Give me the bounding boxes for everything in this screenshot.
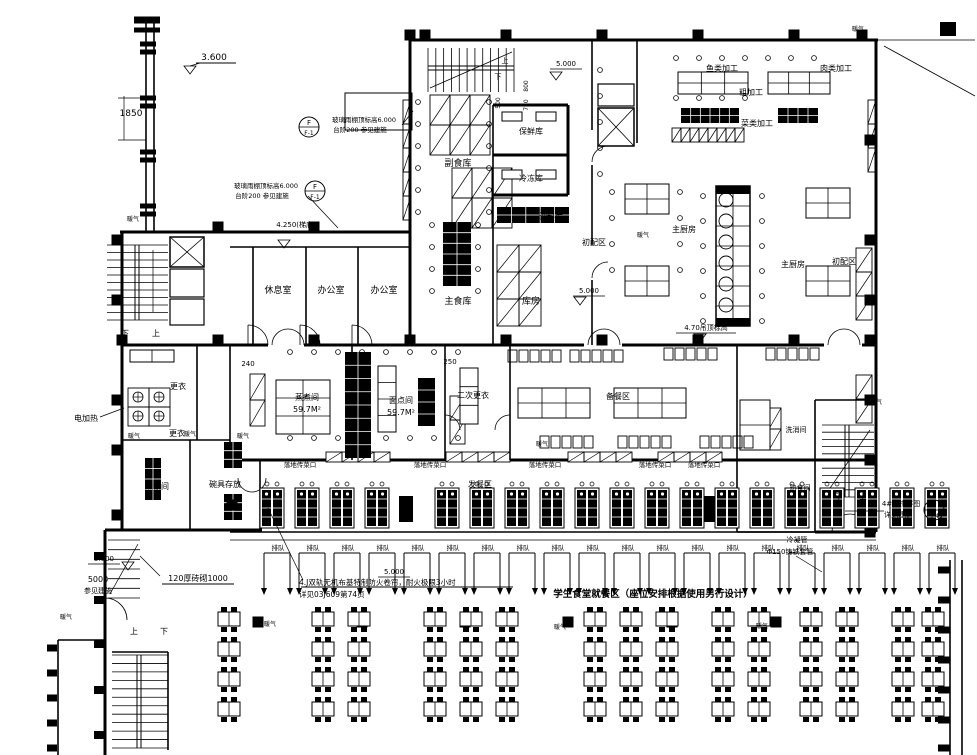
plan-label: 落地传菜口: [529, 460, 562, 469]
plan-label: 5000: [88, 575, 108, 584]
detail-circle-top: F: [307, 119, 311, 127]
detail-circle-bottom: 3-4: [929, 513, 939, 520]
plan-label: 落地传菜口: [688, 460, 721, 469]
plan-label: Φ150铸铁套管: [767, 547, 814, 556]
plan-label: 鱼类加工: [706, 63, 738, 73]
plan-label: 落地传菜口: [284, 460, 317, 469]
detail-circle-top: F: [313, 183, 317, 191]
queue-label: 排队: [517, 543, 531, 552]
plan-label: 4#楼梯详图: [882, 499, 920, 508]
plan-label: 500: [495, 97, 502, 109]
plan-label: 暖气: [264, 620, 276, 628]
plan-label: 台阶200 参见建施: [333, 125, 387, 134]
plan-label: 办公室: [317, 284, 344, 296]
queue-label: 排队: [412, 543, 426, 552]
plan-label: 初配区: [582, 237, 606, 247]
plan-label: 暖气: [237, 432, 249, 440]
plan-label: 碗具存放: [209, 479, 241, 489]
plan-label: 800: [523, 80, 530, 92]
plan-label: 下: [160, 627, 168, 636]
plan-label: 备餐区: [606, 391, 630, 401]
plan-label: 办公室: [370, 284, 397, 296]
plan-label: 二次更衣: [457, 390, 489, 400]
plan-label: 玻璃雨棚顶标高6.000: [234, 181, 298, 190]
plan-label: 库房: [522, 295, 540, 307]
plan-label: 暖气: [637, 231, 649, 239]
plan-label: 更衣: [170, 381, 186, 391]
serving-stations-layer: [260, 482, 949, 528]
plan-label: 熟食间: [790, 483, 811, 492]
queue-label: 排队: [902, 543, 916, 552]
plan-label: 5.000: [556, 60, 576, 68]
plan-label: 菜类加工: [741, 118, 773, 128]
note-fire-curtain-line2: 详见03J609第74页: [299, 589, 365, 600]
note-dining-area: 学生食堂就餐区（座位安排根据使用另行设计）: [468, 586, 838, 600]
queue-label: 排队: [272, 543, 286, 552]
floor-plan-svg: 排队排队排队排队排队排队排队排队排队排队排队排队排队排队排队排队排队排队排队排队…: [0, 0, 977, 755]
plan-label: 暖气: [184, 430, 196, 438]
detail-circle-bottom: F-1: [304, 130, 314, 137]
plan-label: 更衣: [169, 428, 185, 438]
plan-label: 主厨房: [781, 259, 805, 269]
queue-label: 排队: [692, 543, 706, 552]
plan-label: 初配区: [832, 256, 856, 266]
plan-label: 1850: [120, 109, 143, 119]
queue-label: 排队: [377, 543, 391, 552]
plan-label: 暖气: [128, 432, 140, 440]
plan-label: 240: [241, 360, 254, 368]
queue-label: 排队: [867, 543, 881, 552]
plan-label: 保鲜库: [519, 126, 543, 136]
plan-label: 750: [523, 99, 530, 111]
plan-label: 上: [860, 492, 867, 501]
plan-label: 暖气: [536, 440, 548, 448]
plan-label: 调料库: [539, 211, 563, 221]
plan-label: 冷凝管: [787, 535, 808, 544]
plan-label: 面点间: [389, 396, 413, 405]
plan-label: 详见建施: [884, 510, 912, 519]
queue-label: 排队: [622, 543, 636, 552]
queue-label: 排队: [482, 543, 496, 552]
plan-label: 落地传菜口: [639, 460, 672, 469]
plan-label: 59.7M²: [387, 408, 415, 417]
plan-label: 5.000: [94, 555, 114, 563]
plan-label: 电加热: [74, 413, 98, 423]
plan-label: 落地传菜口: [414, 460, 447, 469]
detail-circle-bottom: F-1: [310, 194, 320, 201]
plan-label: 59.7M²: [293, 405, 321, 414]
plan-label: 台阶200 参见建施: [235, 191, 289, 200]
plan-label: 玻璃雨棚顶标高6.000: [332, 115, 396, 124]
plan-label: 暖气: [870, 398, 882, 406]
queue-label: 排队: [937, 543, 951, 552]
queue-label: 排队: [342, 543, 356, 552]
plan-label: 暖气: [554, 623, 566, 631]
floor-plan-stage: 排队排队排队排队排队排队排队排队排队排队排队排队排队排队排队排队排队排队排队排队…: [0, 0, 977, 755]
queue-label: 排队: [657, 543, 671, 552]
queue-label: 排队: [307, 543, 321, 552]
plan-label: 粗加工: [739, 87, 763, 97]
plan-label: 蒸饭间: [145, 481, 169, 491]
plan-label: 肉类加工: [820, 63, 852, 73]
plan-label: 下: [836, 493, 843, 501]
plan-label: 参见建施: [84, 586, 112, 595]
plan-label: 上: [152, 329, 160, 338]
plan-label: 蒸煮间: [295, 392, 319, 402]
plan-label: 4.70吊顶标高: [684, 323, 728, 332]
queue-label: 排队: [727, 543, 741, 552]
plan-label: 上: [502, 56, 509, 65]
queue-label: 排队: [552, 543, 566, 552]
plan-label: 下: [495, 73, 502, 81]
queue-label: 排队: [447, 543, 461, 552]
plan-label: 暖气: [60, 613, 72, 621]
plan-label: 休息室: [264, 284, 291, 296]
plan-label: 发餐区: [468, 479, 492, 489]
plan-label: 冷冻库: [519, 173, 543, 183]
plan-label: 暖气: [852, 25, 864, 33]
plan-label: 5.000: [579, 287, 599, 295]
plan-label: 5.000: [384, 568, 404, 576]
plan-label: 暖气: [756, 622, 768, 630]
plan-label: 上: [130, 627, 138, 636]
plan-label: 4.250(梯底): [276, 220, 316, 229]
plan-label: 主厨房: [672, 224, 696, 234]
plan-label: 250: [443, 358, 456, 366]
plan-label: 洗消间: [786, 425, 807, 434]
plan-label: 暖气: [127, 215, 139, 223]
plan-label: 下: [121, 329, 129, 338]
dining-tables-layer: [218, 607, 944, 722]
plan-label: 副食库: [444, 157, 471, 169]
plan-label: 120厚砖砌1000: [168, 573, 228, 583]
queue-label: 排队: [832, 543, 846, 552]
note-fire-curtain-line1: 4.J双轨无机布基特制防火卷帘，耐火极限3小时: [299, 577, 456, 588]
queue-label: 排队: [587, 543, 601, 552]
plan-label: 主食库: [444, 295, 471, 307]
plan-label: 3.600: [201, 53, 227, 63]
